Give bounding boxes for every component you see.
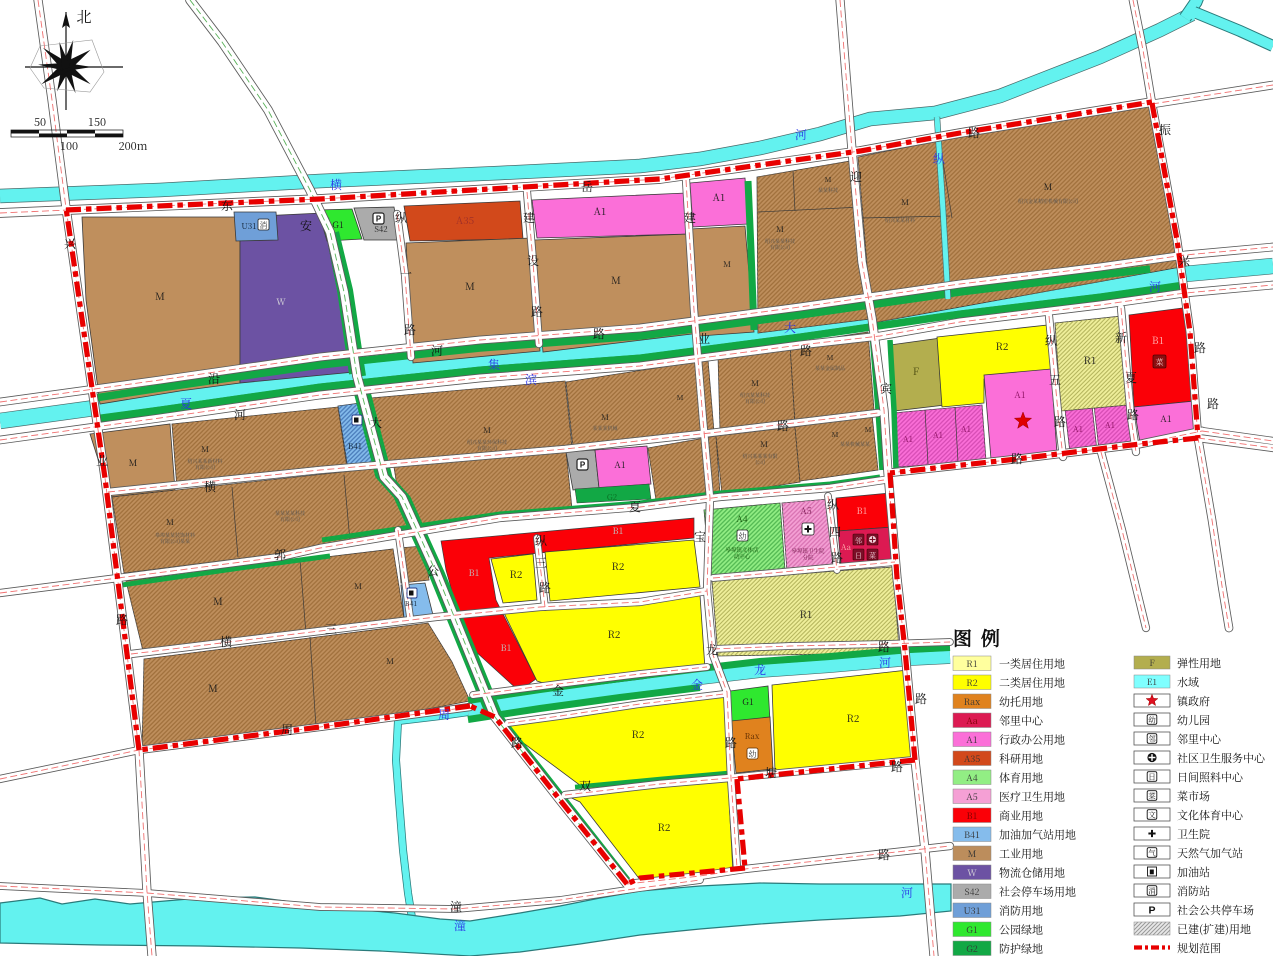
svg-text:滨: 滨 <box>525 371 537 388</box>
svg-text:三: 三 <box>535 554 547 571</box>
svg-text:路: 路 <box>1207 395 1219 412</box>
svg-text:有限公司: 有限公司 <box>770 244 790 251</box>
svg-text:E1: E1 <box>1147 676 1158 688</box>
svg-text:纵: 纵 <box>827 496 839 513</box>
svg-text:A5: A5 <box>966 790 977 803</box>
svg-text:R2: R2 <box>510 566 523 581</box>
svg-text:天然气加气站: 天然气加气站 <box>1177 845 1243 861</box>
svg-text:日: 日 <box>1148 772 1156 783</box>
svg-text:兴: 兴 <box>1178 252 1191 269</box>
svg-text:F: F <box>1149 657 1155 669</box>
svg-text:B1: B1 <box>1152 332 1164 347</box>
svg-text:200m: 200m <box>119 138 148 154</box>
svg-text:纵: 纵 <box>395 209 407 226</box>
svg-text:R2: R2 <box>612 558 625 573</box>
svg-text:纵: 纵 <box>933 150 945 167</box>
svg-text:幼儿园: 幼儿园 <box>1177 712 1210 728</box>
svg-text:路: 路 <box>831 549 843 566</box>
svg-text:R2: R2 <box>608 626 621 641</box>
svg-text:周: 周 <box>438 706 450 723</box>
svg-text:Rax: Rax <box>964 695 981 708</box>
svg-text:路: 路 <box>531 303 543 320</box>
svg-text:路: 路 <box>1127 406 1139 423</box>
svg-text:M: M <box>166 517 174 528</box>
svg-text:社区卫生服务中心: 社区卫生服务中心 <box>1177 750 1266 766</box>
svg-text:夏: 夏 <box>1125 369 1137 386</box>
svg-text:R2: R2 <box>847 710 860 725</box>
svg-text:路: 路 <box>539 579 551 596</box>
svg-text:R2: R2 <box>632 726 645 741</box>
svg-text:A1: A1 <box>933 430 943 441</box>
svg-text:M: M <box>901 197 909 208</box>
svg-text:岳: 岳 <box>581 178 593 195</box>
svg-text:公园绿地: 公园绿地 <box>999 922 1043 938</box>
svg-text:M: M <box>611 272 621 287</box>
svg-text:路: 路 <box>725 734 737 751</box>
svg-text:弹性用地: 弹性用地 <box>1177 655 1221 671</box>
svg-text:B41: B41 <box>405 599 418 609</box>
svg-text:河: 河 <box>1149 278 1161 295</box>
svg-text:A1: A1 <box>966 733 977 746</box>
svg-text:M: M <box>968 847 977 860</box>
svg-text:路: 路 <box>116 611 128 628</box>
svg-text:幼托用地: 幼托用地 <box>999 694 1043 710</box>
svg-text:有限公司: 有限公司 <box>280 516 300 523</box>
svg-text:B1: B1 <box>967 809 978 822</box>
svg-text:菜市场: 菜市场 <box>1177 788 1210 804</box>
svg-text:M: M <box>386 656 394 667</box>
svg-text:绍兴金某精密机械有限公司: 绍兴金某精密机械有限公司 <box>1018 198 1078 205</box>
svg-text:水域: 水域 <box>1177 674 1199 690</box>
svg-text:社会公共停车场: 社会公共停车场 <box>1177 902 1254 918</box>
svg-text:宝: 宝 <box>694 528 706 545</box>
svg-text:河: 河 <box>901 884 913 901</box>
svg-text:防护绿地: 防护绿地 <box>999 941 1043 957</box>
svg-text:Rax: Rax <box>745 731 760 742</box>
svg-text:四: 四 <box>829 523 841 540</box>
svg-text:某某机械某某: 某某机械某某 <box>840 441 870 448</box>
svg-text:潼: 潼 <box>450 898 462 915</box>
svg-text:B1: B1 <box>501 641 512 654</box>
svg-text:二类居住用地: 二类居住用地 <box>999 675 1065 691</box>
svg-text:M: M <box>129 456 138 469</box>
svg-text:潼: 潼 <box>454 917 466 934</box>
svg-text:G1: G1 <box>742 695 754 708</box>
svg-text:R2: R2 <box>966 676 977 689</box>
svg-text:社会停车场用地: 社会停车场用地 <box>999 884 1076 900</box>
svg-text:大: 大 <box>784 319 796 336</box>
svg-text:B1: B1 <box>469 566 480 579</box>
svg-text:龙: 龙 <box>754 661 766 678</box>
svg-text:菜: 菜 <box>1156 357 1164 368</box>
svg-text:G2: G2 <box>966 942 978 955</box>
svg-text:有限公司: 有限公司 <box>195 464 215 471</box>
svg-text:S42: S42 <box>964 885 979 898</box>
svg-text:路: 路 <box>891 758 903 775</box>
svg-text:R2: R2 <box>658 819 671 834</box>
svg-text:幼: 幼 <box>1148 715 1156 726</box>
svg-text:Aa: Aa <box>966 714 977 727</box>
svg-text:M: M <box>776 224 784 235</box>
svg-text:P: P <box>1148 905 1155 917</box>
svg-text:邻里中心: 邻里中心 <box>1177 731 1222 747</box>
svg-text:幼: 幼 <box>739 531 747 542</box>
svg-text:路: 路 <box>878 638 890 655</box>
svg-text:物流仓储用地: 物流仓储用地 <box>999 865 1065 881</box>
svg-text:加油站: 加油站 <box>1177 864 1210 880</box>
svg-text:消: 消 <box>260 220 268 231</box>
svg-text:M: M <box>760 439 768 450</box>
svg-text:宾: 宾 <box>880 380 892 397</box>
svg-text:R1: R1 <box>966 657 977 670</box>
svg-text:50: 50 <box>34 114 46 130</box>
svg-text:已建(扩建)用地: 已建(扩建)用地 <box>1177 921 1251 937</box>
svg-text:路: 路 <box>511 734 523 751</box>
svg-text:一: 一 <box>400 265 412 282</box>
svg-text:新: 新 <box>1115 329 1127 346</box>
svg-text:A1: A1 <box>713 189 726 204</box>
svg-text:路: 路 <box>878 846 890 863</box>
svg-text:有限公司某某: 有限公司某某 <box>160 538 190 545</box>
svg-text:路: 路 <box>800 342 812 359</box>
svg-text:M: M <box>213 593 223 608</box>
svg-text:M: M <box>601 412 609 423</box>
svg-text:郭: 郭 <box>274 546 286 563</box>
svg-text:R1: R1 <box>1084 352 1097 367</box>
svg-text:路: 路 <box>777 417 789 434</box>
svg-text:R1: R1 <box>800 606 813 621</box>
svg-text:夏: 夏 <box>629 498 641 515</box>
svg-text:科研用地: 科研用地 <box>999 751 1043 767</box>
svg-text:A4: A4 <box>736 512 747 525</box>
svg-text:消防站: 消防站 <box>1177 883 1210 899</box>
svg-text:金: 金 <box>691 676 703 693</box>
svg-text:行政办公用地: 行政办公用地 <box>999 732 1065 748</box>
svg-text:公: 公 <box>427 562 439 579</box>
svg-text:菜: 菜 <box>869 551 876 561</box>
svg-text:业: 业 <box>698 330 710 347</box>
svg-text:河: 河 <box>431 342 443 359</box>
svg-text:北: 北 <box>76 6 91 27</box>
svg-text:A35: A35 <box>456 212 474 227</box>
svg-text:邻: 邻 <box>855 536 862 546</box>
svg-text:R2: R2 <box>996 338 1009 353</box>
svg-text:B41: B41 <box>348 441 362 452</box>
svg-text:路: 路 <box>1011 450 1023 467</box>
svg-text:B41: B41 <box>964 828 980 841</box>
svg-text:动中心: 动中心 <box>734 553 751 561</box>
svg-text:U31: U31 <box>241 221 256 232</box>
svg-text:迎: 迎 <box>850 168 862 185</box>
svg-text:五: 五 <box>1049 371 1061 388</box>
svg-text:M: M <box>827 353 834 363</box>
svg-text:M: M <box>155 288 165 303</box>
svg-text:兴: 兴 <box>64 235 77 252</box>
svg-text:U31: U31 <box>963 904 980 917</box>
svg-text:幼: 幼 <box>749 749 757 760</box>
svg-text:M: M <box>832 430 839 440</box>
svg-text:消防用地: 消防用地 <box>999 903 1043 919</box>
svg-text:100: 100 <box>60 138 78 154</box>
svg-text:沿: 沿 <box>208 370 220 387</box>
svg-text:河: 河 <box>879 654 891 671</box>
svg-text:A4: A4 <box>966 771 977 784</box>
svg-text:A35: A35 <box>964 752 980 765</box>
svg-text:G1: G1 <box>966 923 978 936</box>
svg-text:设: 设 <box>527 252 539 269</box>
svg-text:某某某机械: 某某某机械 <box>592 425 617 432</box>
svg-text:工业用地: 工业用地 <box>999 846 1043 862</box>
svg-text:A1: A1 <box>961 424 971 435</box>
svg-text:塘: 塘 <box>765 764 777 781</box>
svg-text:A1: A1 <box>903 434 913 445</box>
svg-text:路: 路 <box>968 124 980 141</box>
svg-text:东: 东 <box>221 197 233 214</box>
svg-text:周: 周 <box>281 721 293 738</box>
svg-text:M: M <box>1044 180 1053 193</box>
svg-text:M: M <box>751 378 759 389</box>
svg-text:有限公司: 有限公司 <box>745 398 765 405</box>
svg-text:夏: 夏 <box>180 395 192 412</box>
svg-text:安: 安 <box>300 217 312 234</box>
svg-text:一类居住用地: 一类居住用地 <box>999 656 1065 672</box>
svg-text:体育用地: 体育用地 <box>999 770 1043 786</box>
svg-text:双: 双 <box>579 777 591 794</box>
svg-text:P: P <box>580 461 586 470</box>
svg-text:河: 河 <box>234 406 246 423</box>
svg-text:150: 150 <box>88 114 106 130</box>
svg-text:建: 建 <box>684 209 696 226</box>
svg-text:路: 路 <box>1194 339 1206 356</box>
svg-text:绍兴某某材料: 绍兴某某材料 <box>885 217 915 224</box>
svg-text:A1: A1 <box>594 203 607 218</box>
svg-text:S42: S42 <box>374 224 387 235</box>
svg-text:路: 路 <box>915 690 927 707</box>
svg-text:M: M <box>723 259 731 270</box>
svg-text:A1: A1 <box>1105 420 1115 431</box>
svg-text:M: M <box>677 393 684 403</box>
svg-text:M: M <box>208 680 218 695</box>
svg-text:日间照料中心: 日间照料中心 <box>1177 769 1244 785</box>
svg-text:镇政府: 镇政府 <box>1177 693 1210 709</box>
svg-text:文化体育中心: 文化体育中心 <box>1177 807 1244 823</box>
svg-text:某某科技: 某某科技 <box>818 187 838 194</box>
svg-text:G1: G1 <box>332 218 344 231</box>
svg-text:龙: 龙 <box>706 641 718 658</box>
svg-text:F: F <box>913 363 919 378</box>
svg-text:医疗卫生用地: 医疗卫生用地 <box>999 789 1065 805</box>
svg-text:邻: 邻 <box>1148 734 1156 745</box>
svg-text:菜: 菜 <box>1148 791 1156 802</box>
svg-text:A5: A5 <box>800 504 811 517</box>
svg-text:B1: B1 <box>857 504 868 517</box>
svg-text:规划范围: 规划范围 <box>1177 940 1221 956</box>
svg-text:图 例: 图 例 <box>953 624 1002 651</box>
svg-text:建: 建 <box>523 209 535 226</box>
svg-text:河: 河 <box>795 126 807 143</box>
svg-text:三: 三 <box>325 620 337 637</box>
svg-text:路: 路 <box>404 321 416 338</box>
svg-text:路: 路 <box>593 325 605 342</box>
svg-text:M: M <box>201 444 209 455</box>
svg-text:W: W <box>276 295 286 308</box>
svg-text:气: 气 <box>1148 848 1156 859</box>
svg-text:横: 横 <box>220 633 232 650</box>
svg-text:A1: A1 <box>1160 412 1171 425</box>
svg-text:A1: A1 <box>1073 424 1083 435</box>
svg-text:横: 横 <box>204 478 216 495</box>
svg-text:路: 路 <box>1054 413 1066 430</box>
svg-text:加油加气站用地: 加油加气站用地 <box>999 827 1076 843</box>
svg-text:A1: A1 <box>614 458 625 471</box>
svg-text:W: W <box>967 866 977 879</box>
svg-text:集: 集 <box>488 356 500 373</box>
svg-text:横: 横 <box>330 176 342 193</box>
svg-text:日: 日 <box>855 551 862 561</box>
svg-text:纵: 纵 <box>535 532 547 549</box>
svg-text:M: M <box>825 175 832 185</box>
svg-text:文: 文 <box>1148 810 1156 821</box>
svg-text:G2: G2 <box>607 492 617 503</box>
svg-text:某某金属制品: 某某金属制品 <box>815 365 845 372</box>
svg-text:邻里中心: 邻里中心 <box>999 713 1044 729</box>
svg-text:A1: A1 <box>1014 388 1025 401</box>
svg-text:M: M <box>483 425 491 436</box>
svg-text:大: 大 <box>370 414 382 431</box>
svg-text:业: 业 <box>96 452 108 469</box>
svg-text:B1: B1 <box>613 524 624 537</box>
svg-text:公司: 公司 <box>755 459 765 466</box>
svg-text:商业用地: 商业用地 <box>999 808 1043 824</box>
svg-text:M: M <box>354 581 362 592</box>
svg-text:M: M <box>865 425 872 435</box>
svg-text:金: 金 <box>552 682 564 699</box>
svg-text:纵: 纵 <box>1045 332 1057 349</box>
svg-text:卫生院: 卫生院 <box>1177 826 1210 842</box>
svg-text:振: 振 <box>1159 121 1171 138</box>
svg-text:M: M <box>465 278 475 293</box>
svg-text:消: 消 <box>1148 886 1156 897</box>
svg-text:P: P <box>376 215 382 224</box>
svg-text:有限公司: 有限公司 <box>477 445 497 452</box>
svg-text:分院: 分院 <box>802 554 814 562</box>
